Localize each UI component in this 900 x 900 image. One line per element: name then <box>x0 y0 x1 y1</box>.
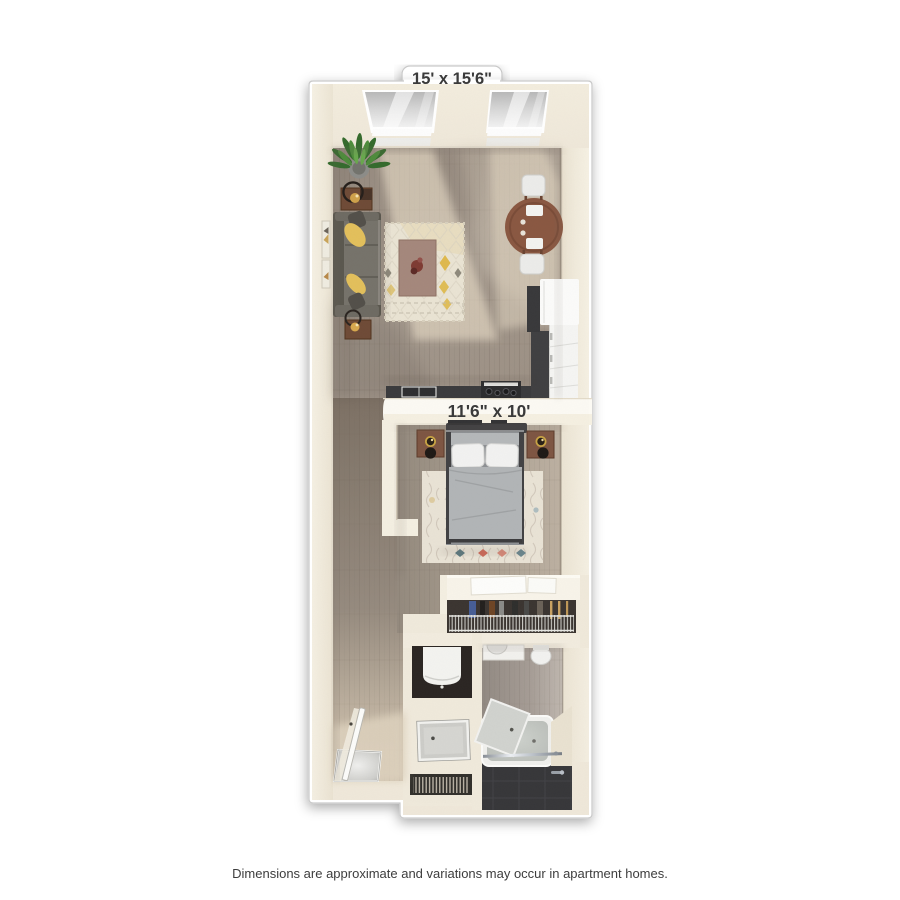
svg-text:15' x 15'6": 15' x 15'6" <box>412 70 492 88</box>
svg-text:Dimensions are approximate and: Dimensions are approximate and variation… <box>232 866 668 881</box>
svg-text:11'6" x 10': 11'6" x 10' <box>448 401 531 421</box>
